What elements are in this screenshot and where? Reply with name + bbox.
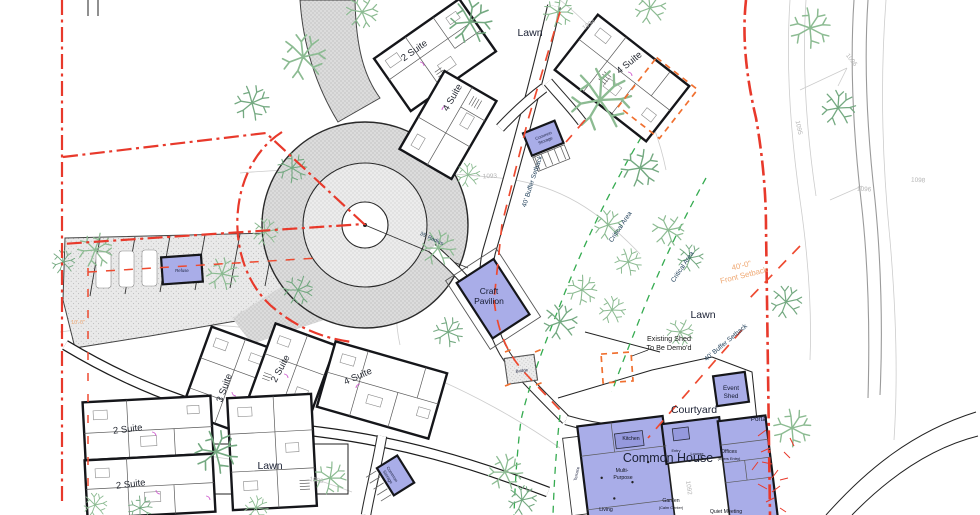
label-contour-1096-b: 1096	[857, 186, 872, 194]
building-2suite-bl-upper	[83, 396, 214, 461]
label-lounge: Lounge	[691, 451, 704, 456]
label-multi-purpose-2: Purpose	[613, 475, 632, 481]
label-buffer-setback-b: 40' Buffer Setback	[703, 323, 749, 363]
label-lawn-right: Lawn	[690, 309, 715, 321]
label-offices-sub: (Byers Entry)	[718, 456, 741, 461]
label-garden: Garden	[662, 498, 679, 504]
label-kitchen: Kitchen	[622, 436, 639, 442]
tree-icon	[563, 271, 603, 310]
label-side-setback: 10'-0"	[71, 320, 85, 326]
tree-icon	[820, 89, 858, 128]
label-garden-sub: (Calm Center)	[659, 505, 684, 510]
label-courtyard: Courtyard	[671, 404, 717, 416]
tree-icon	[616, 144, 665, 193]
label-demo-2: To Be Demo'd	[647, 343, 692, 352]
label-lawn-bottom: Lawn	[257, 460, 282, 472]
label-critical-area-b: Critical Area	[670, 250, 696, 284]
tree-icon	[772, 286, 802, 317]
label-craft-pavilion-2: Pavilion	[474, 296, 504, 306]
label-event-shed-1: Event	[723, 385, 739, 392]
tree-icon	[597, 294, 628, 326]
label-contour-1095: 1095	[794, 120, 804, 136]
label-multi-purpose: Multi-	[616, 468, 629, 474]
tree-icon	[767, 403, 817, 453]
tree-icon	[784, 1, 838, 55]
tree-icon	[651, 214, 685, 247]
label-lawn-top: Lawn	[517, 27, 542, 39]
tree-icon	[611, 245, 646, 280]
tree-icon	[457, 163, 480, 186]
tree-icon	[230, 81, 275, 127]
label-contour-1096-a: 1096	[844, 52, 859, 68]
site-plan-canvas: Lawn Lawn Lawn Courtyard Portal Terrace …	[0, 0, 980, 515]
label-buffer-setback-a: 40' Buffer Setback	[521, 154, 544, 208]
label-quiet-meeting: Quiet Meeting	[710, 509, 742, 515]
tree-icon	[429, 313, 468, 352]
label-contour-1093: 1093	[483, 173, 498, 181]
building-2suite-bl-lower	[85, 454, 216, 515]
building-4suite-mid	[317, 341, 447, 438]
tree-icon	[544, 305, 577, 339]
label-living: Living	[599, 507, 613, 513]
label-craft-pavilion-1: Craft	[480, 286, 499, 296]
label-contour-1098: 1098	[911, 177, 926, 185]
site-plan-drawing: Lawn Lawn Lawn Courtyard Portal Terrace …	[0, 0, 980, 515]
building-4suite-topright	[555, 15, 690, 142]
label-event-shed-2: Shed	[724, 393, 739, 400]
tree-icon	[636, 0, 666, 24]
label-offices: Offices	[721, 449, 737, 455]
label-portal: Portal	[751, 416, 767, 423]
label-demo-1: Existing Shed	[647, 334, 691, 343]
label-entry: Entry	[671, 448, 680, 453]
perimeter-road	[826, 0, 978, 515]
label-refuse: Refuse	[175, 268, 189, 273]
building-bl-annex	[227, 394, 317, 510]
